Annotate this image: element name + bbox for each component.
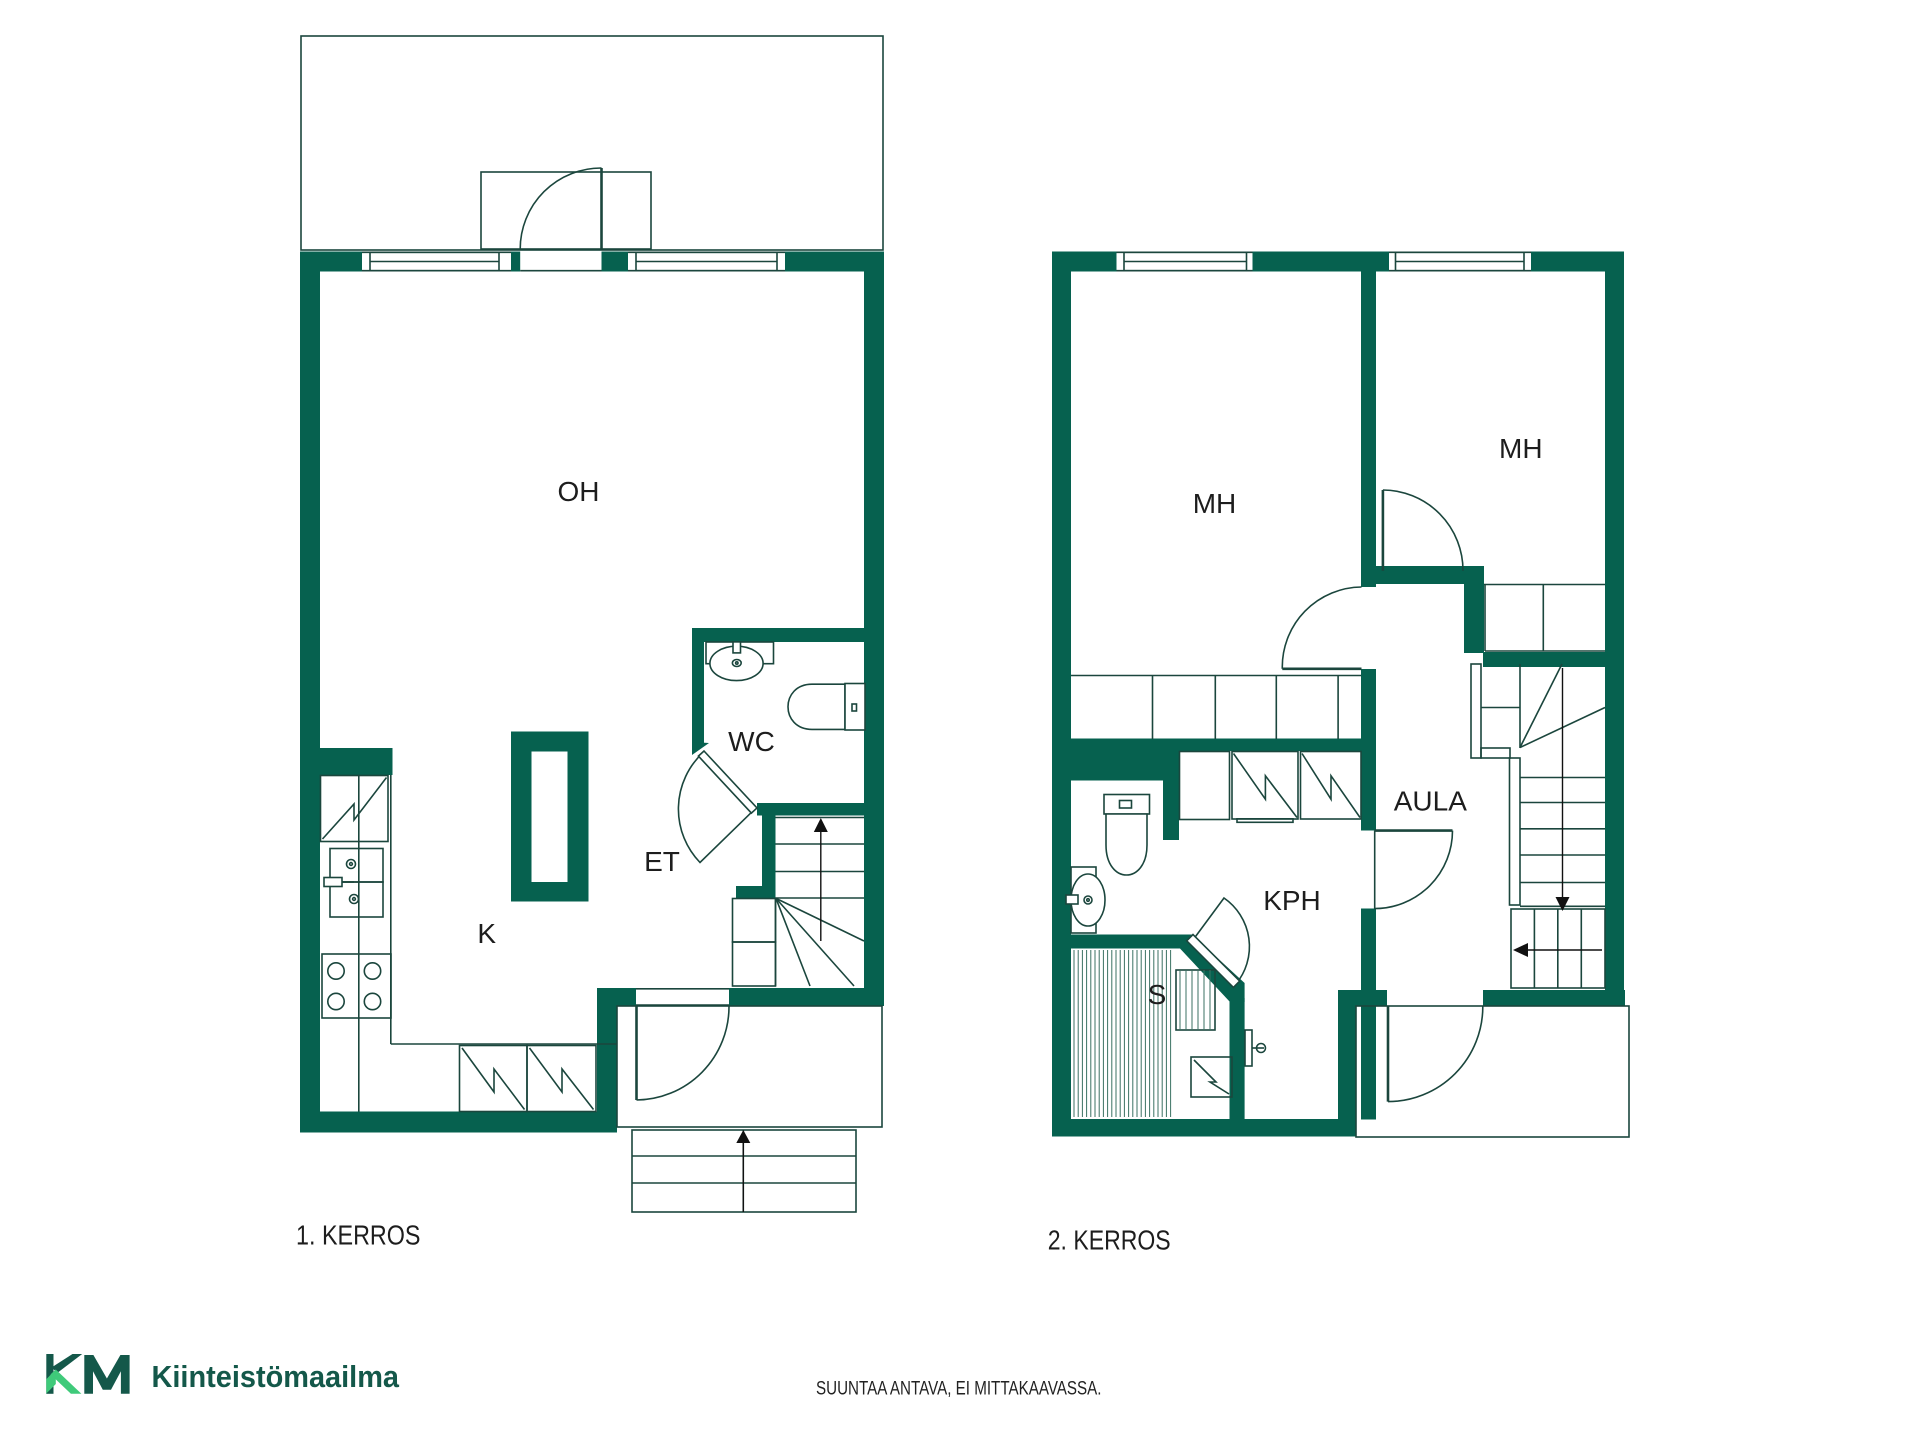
svg-text:K: K <box>477 918 496 949</box>
svg-text:WC: WC <box>728 726 775 757</box>
svg-text:AULA: AULA <box>1394 786 1467 817</box>
svg-text:MH: MH <box>1193 488 1237 519</box>
svg-text:MH: MH <box>1499 433 1543 464</box>
svg-text:1. KERROS: 1. KERROS <box>296 1220 421 1251</box>
svg-text:2. KERROS: 2. KERROS <box>1048 1225 1171 1256</box>
svg-text:OH: OH <box>558 476 600 507</box>
svg-text:SUUNTAA ANTAVA, EI MITTAKAAVAS: SUUNTAA ANTAVA, EI MITTAKAAVASSA. <box>816 1379 1102 1400</box>
svg-text:S: S <box>1148 979 1167 1010</box>
svg-text:ET: ET <box>644 846 680 877</box>
svg-text:KPH: KPH <box>1263 885 1321 916</box>
svg-text:Kiinteistömaailma: Kiinteistömaailma <box>152 1359 400 1394</box>
